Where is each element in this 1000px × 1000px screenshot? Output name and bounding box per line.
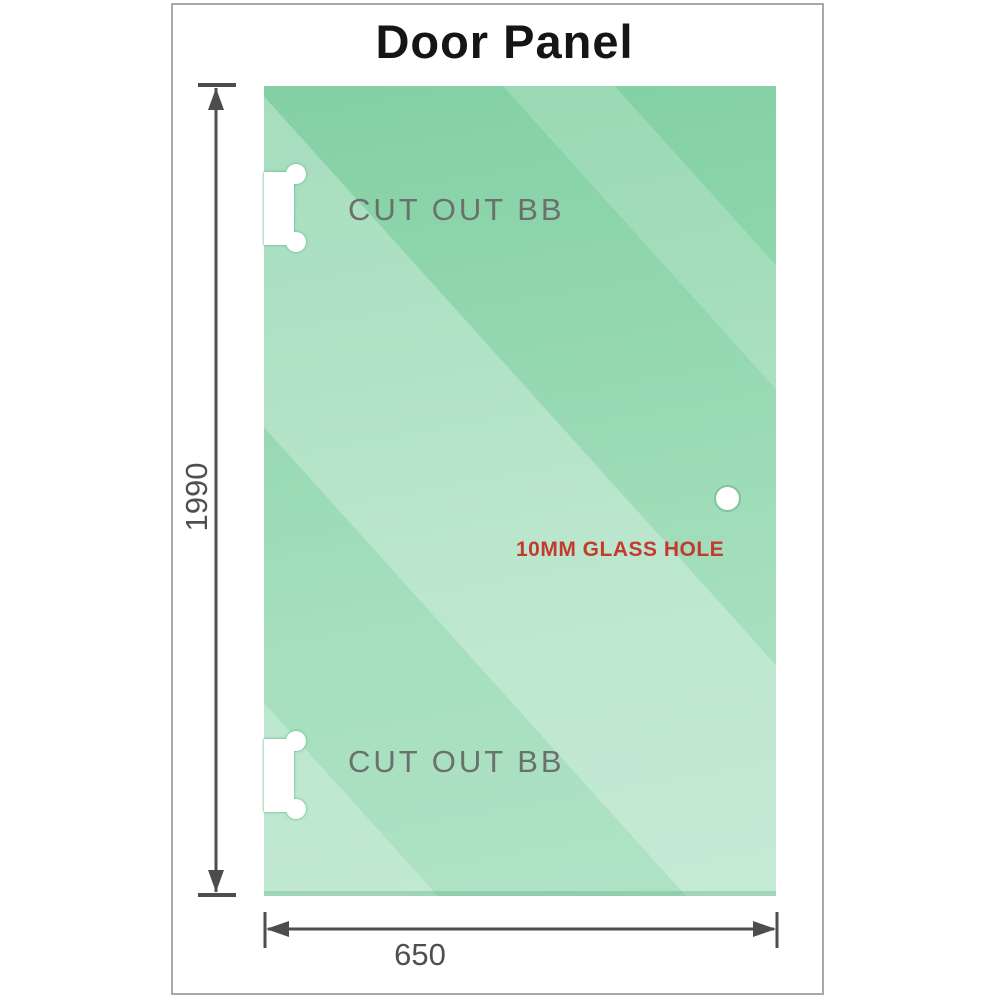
arrowhead-up-icon <box>208 88 224 110</box>
diagram-stage: Door Panel CUT OUT BB CUT OUT BB 10MM GL… <box>0 0 1000 1000</box>
arrowhead-down-icon <box>208 870 224 892</box>
cutout-notch-bottom <box>264 731 308 823</box>
cutout-notch-lobe <box>286 731 306 751</box>
arrowhead-right-icon <box>753 921 776 937</box>
height-dimension-label: 1990 <box>180 427 214 567</box>
cutout-notch-lobe <box>286 232 306 252</box>
glass-hole <box>714 485 741 512</box>
cutout-notch-top <box>264 164 308 256</box>
cutout-label-bottom: CUT OUT BB <box>348 744 565 780</box>
arrowhead-left-icon <box>266 921 289 937</box>
width-dimension-arrow-icon <box>258 908 784 952</box>
width-dimension-label: 650 <box>350 938 490 972</box>
cutout-notch-lobe <box>286 164 306 184</box>
page-title: Door Panel <box>171 14 824 69</box>
cutout-label-top: CUT OUT BB <box>348 192 565 228</box>
glass-panel: CUT OUT BB CUT OUT BB 10MM GLASS HOLE <box>264 86 776 896</box>
cutout-notch-lobe <box>286 799 306 819</box>
glass-hole-label: 10MM GLASS HOLE <box>516 538 724 562</box>
